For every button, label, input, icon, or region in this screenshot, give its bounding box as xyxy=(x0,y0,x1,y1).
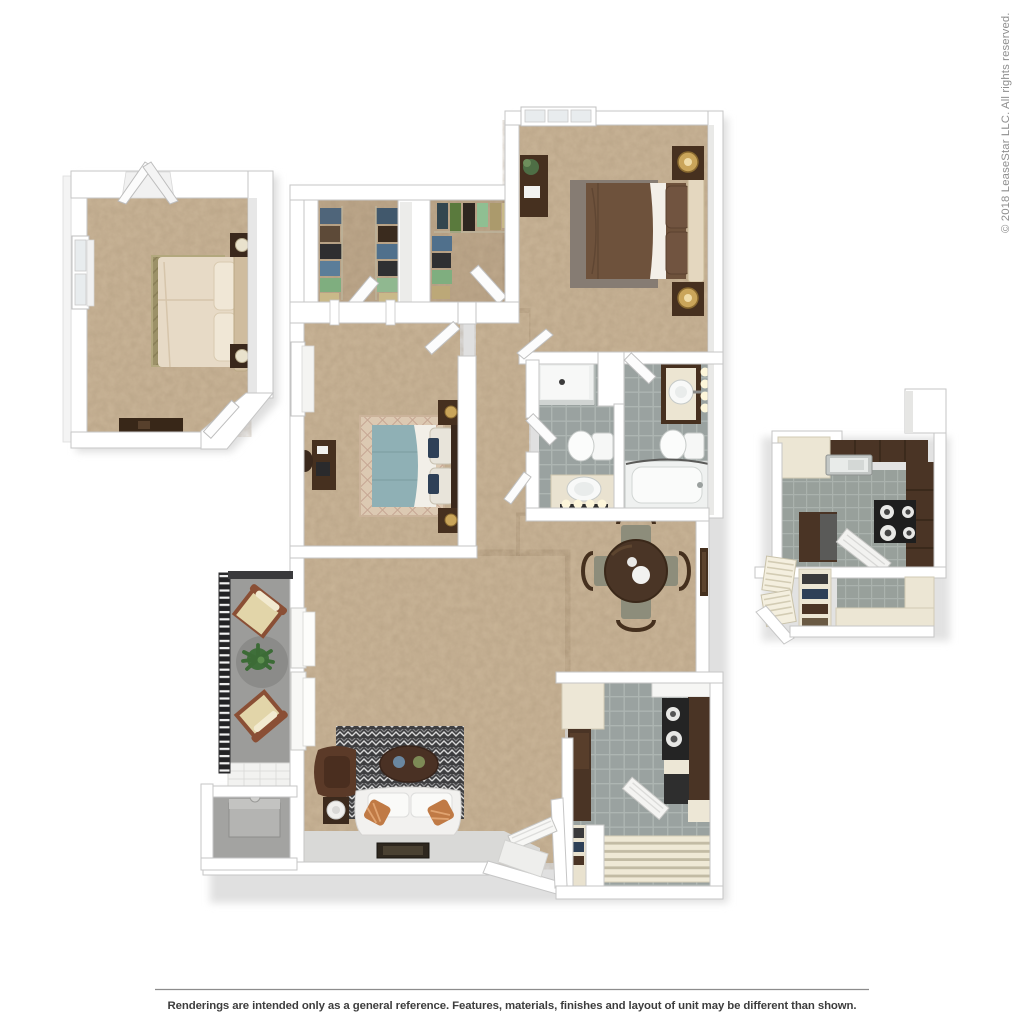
svg-text:© 2018 LeaseStar LLC. All righ: © 2018 LeaseStar LLC. All rights reserve… xyxy=(1000,12,1012,233)
svg-text:Renderings are intended only a: Renderings are intended only as a genera… xyxy=(168,1000,857,1012)
